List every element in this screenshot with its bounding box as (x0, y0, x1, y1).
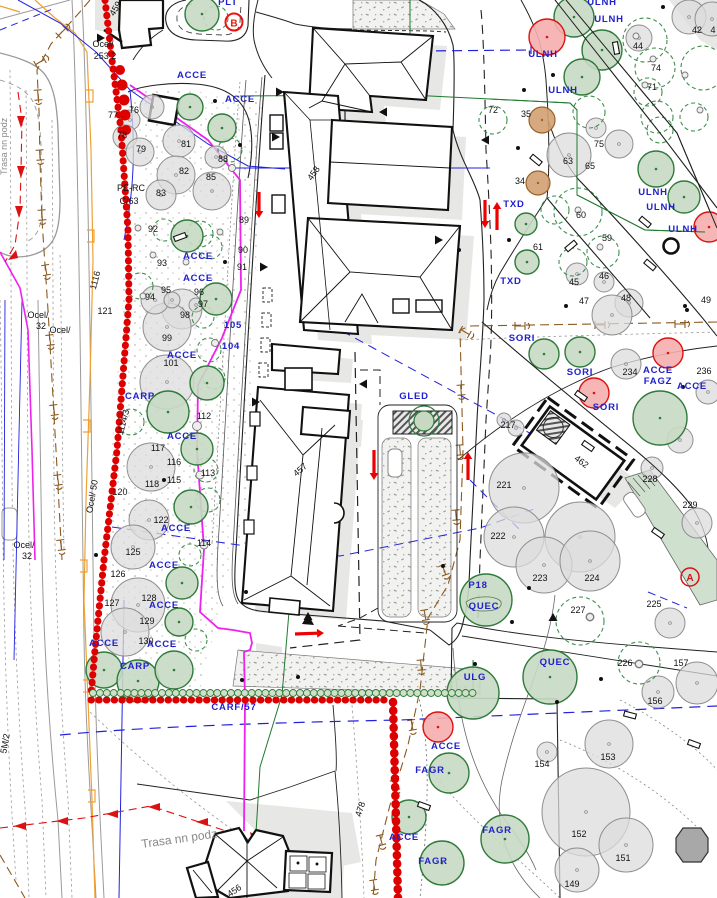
svg-text:81: 81 (181, 139, 191, 149)
svg-text:91: 91 (237, 262, 247, 272)
svg-text:228: 228 (642, 474, 657, 484)
svg-text:FAGR: FAGR (418, 856, 448, 867)
svg-text:94: 94 (145, 292, 155, 302)
svg-text:99: 99 (162, 333, 172, 343)
svg-text:FAGR: FAGR (482, 825, 512, 836)
svg-text:88: 88 (218, 154, 228, 164)
svg-text:Ocel/: Ocel/ (27, 310, 49, 320)
svg-text:227: 227 (570, 605, 585, 615)
svg-text:48: 48 (621, 293, 631, 303)
svg-text:82: 82 (179, 166, 189, 176)
svg-text:151: 151 (615, 853, 630, 863)
svg-text:83: 83 (156, 188, 166, 198)
svg-text:128: 128 (141, 593, 156, 603)
svg-text:CARP: CARP (125, 391, 155, 402)
svg-text:104: 104 (222, 341, 240, 352)
svg-text:125: 125 (125, 547, 140, 557)
svg-text:42: 42 (692, 25, 702, 35)
svg-text:SORI: SORI (593, 402, 619, 413)
svg-text:234: 234 (622, 367, 637, 377)
svg-text:ACCE: ACCE (167, 431, 197, 442)
svg-text:TXD: TXD (503, 199, 524, 210)
svg-text:130: 130 (138, 636, 153, 646)
svg-text:ULNH: ULNH (594, 14, 624, 25)
svg-text:93: 93 (157, 258, 167, 268)
svg-text:121: 121 (97, 306, 112, 316)
svg-text:ACCE: ACCE (183, 273, 213, 284)
svg-text:Ocel/: Ocel/ (92, 39, 114, 49)
svg-text:126: 126 (110, 569, 125, 579)
svg-text:129: 129 (139, 616, 154, 626)
svg-text:B: B (230, 19, 237, 30)
svg-text:ACCE: ACCE (389, 832, 419, 843)
svg-text:32: 32 (36, 321, 46, 331)
svg-text:157: 157 (673, 658, 688, 668)
svg-text:120: 120 (112, 487, 127, 497)
svg-text:PE-RC: PE-RC (117, 183, 146, 193)
svg-text:ULNH: ULNH (548, 85, 578, 96)
svg-text:ULG: ULG (464, 672, 486, 683)
svg-text:ULNH: ULNH (587, 0, 617, 8)
svg-text:224: 224 (584, 573, 599, 583)
svg-text:ACCE: ACCE (225, 94, 255, 105)
svg-text:Trasa nn podz: Trasa nn podz (0, 117, 9, 175)
svg-text:34: 34 (515, 176, 525, 186)
svg-text:45: 45 (569, 277, 579, 287)
svg-text:75: 75 (594, 139, 604, 149)
svg-text:FAGZ: FAGZ (644, 376, 673, 387)
svg-text:90: 90 (238, 245, 248, 255)
svg-text:35: 35 (521, 109, 531, 119)
svg-text:49: 49 (701, 295, 711, 305)
svg-text:127: 127 (104, 598, 119, 608)
svg-text:122: 122 (153, 515, 168, 525)
svg-text:ULNH: ULNH (668, 224, 698, 235)
svg-text:95: 95 (161, 285, 171, 295)
svg-text:ULNH: ULNH (528, 49, 558, 60)
svg-text:101: 101 (163, 358, 178, 368)
svg-text:46: 46 (599, 271, 609, 281)
svg-text:QUEC: QUEC (469, 601, 500, 612)
svg-text:4: 4 (710, 25, 715, 35)
svg-text:ACCE: ACCE (643, 365, 673, 376)
svg-text:C/63: C/63 (119, 196, 138, 206)
svg-text:113: 113 (201, 468, 215, 478)
svg-text:116: 116 (167, 457, 181, 467)
svg-text:32: 32 (22, 551, 32, 561)
svg-text:156: 156 (647, 696, 662, 706)
svg-text:FAGR: FAGR (415, 765, 445, 776)
svg-text:225: 225 (646, 599, 661, 609)
svg-text:236: 236 (696, 366, 711, 376)
svg-text:217: 217 (500, 420, 515, 430)
svg-text:78: 78 (117, 130, 127, 140)
svg-text:ACCE: ACCE (677, 381, 707, 392)
svg-text:72: 72 (488, 105, 498, 115)
svg-text:226: 226 (617, 658, 632, 668)
svg-text:A: A (686, 573, 693, 584)
svg-text:60: 60 (576, 210, 586, 220)
svg-text:47: 47 (579, 296, 589, 306)
svg-text:229: 229 (682, 500, 697, 510)
svg-text:71: 71 (647, 82, 657, 92)
svg-text:ACCE: ACCE (177, 70, 207, 81)
svg-text:ACCE: ACCE (89, 638, 119, 649)
svg-text:85: 85 (206, 172, 216, 182)
svg-text:223: 223 (532, 573, 547, 583)
svg-text:59: 59 (602, 233, 612, 243)
svg-text:115: 115 (167, 475, 181, 485)
svg-text:118: 118 (145, 479, 159, 489)
svg-text:79: 79 (136, 144, 146, 154)
svg-text:P18: P18 (468, 580, 487, 591)
svg-text:105: 105 (224, 320, 242, 331)
svg-text:ULNH: ULNH (646, 202, 676, 213)
svg-text:44: 44 (633, 41, 643, 51)
svg-text:CARF/57: CARF/57 (211, 702, 256, 713)
svg-text:PLT: PLT (218, 0, 238, 8)
svg-text:Ocel/: Ocel/ (13, 540, 35, 550)
svg-text:SORI: SORI (509, 333, 535, 344)
svg-text:TXD: TXD (500, 276, 521, 287)
svg-text:Ocel/: Ocel/ (49, 325, 71, 335)
svg-text:222: 222 (490, 531, 505, 541)
svg-text:221: 221 (496, 480, 511, 490)
svg-text:77: 77 (108, 110, 118, 120)
svg-text:98: 98 (180, 310, 190, 320)
svg-text:76: 76 (129, 105, 139, 115)
svg-text:96: 96 (194, 287, 204, 297)
svg-text:97: 97 (198, 299, 208, 309)
svg-text:112: 112 (197, 411, 211, 421)
svg-text:ACCE: ACCE (431, 741, 461, 752)
svg-text:61: 61 (533, 242, 543, 252)
svg-text:GLED: GLED (399, 391, 429, 402)
svg-text:154: 154 (534, 759, 549, 769)
svg-text:QUEC: QUEC (540, 657, 571, 668)
svg-text:74: 74 (651, 63, 661, 73)
svg-text:65: 65 (585, 161, 595, 171)
svg-text:114: 114 (197, 538, 211, 548)
svg-text:ACCE: ACCE (149, 560, 179, 571)
svg-text:ACCE: ACCE (183, 251, 213, 262)
svg-text:92: 92 (148, 224, 158, 234)
svg-text:153: 153 (600, 752, 615, 762)
svg-text:ULNH: ULNH (638, 187, 668, 198)
svg-text:SORI: SORI (567, 367, 593, 378)
svg-text:152: 152 (571, 829, 586, 839)
svg-text:63: 63 (563, 156, 573, 166)
svg-text:89: 89 (239, 215, 249, 225)
svg-text:CARP: CARP (120, 661, 150, 672)
svg-text:117: 117 (151, 443, 165, 453)
svg-text:253 2: 253 2 (94, 51, 117, 61)
svg-text:149: 149 (564, 879, 579, 889)
